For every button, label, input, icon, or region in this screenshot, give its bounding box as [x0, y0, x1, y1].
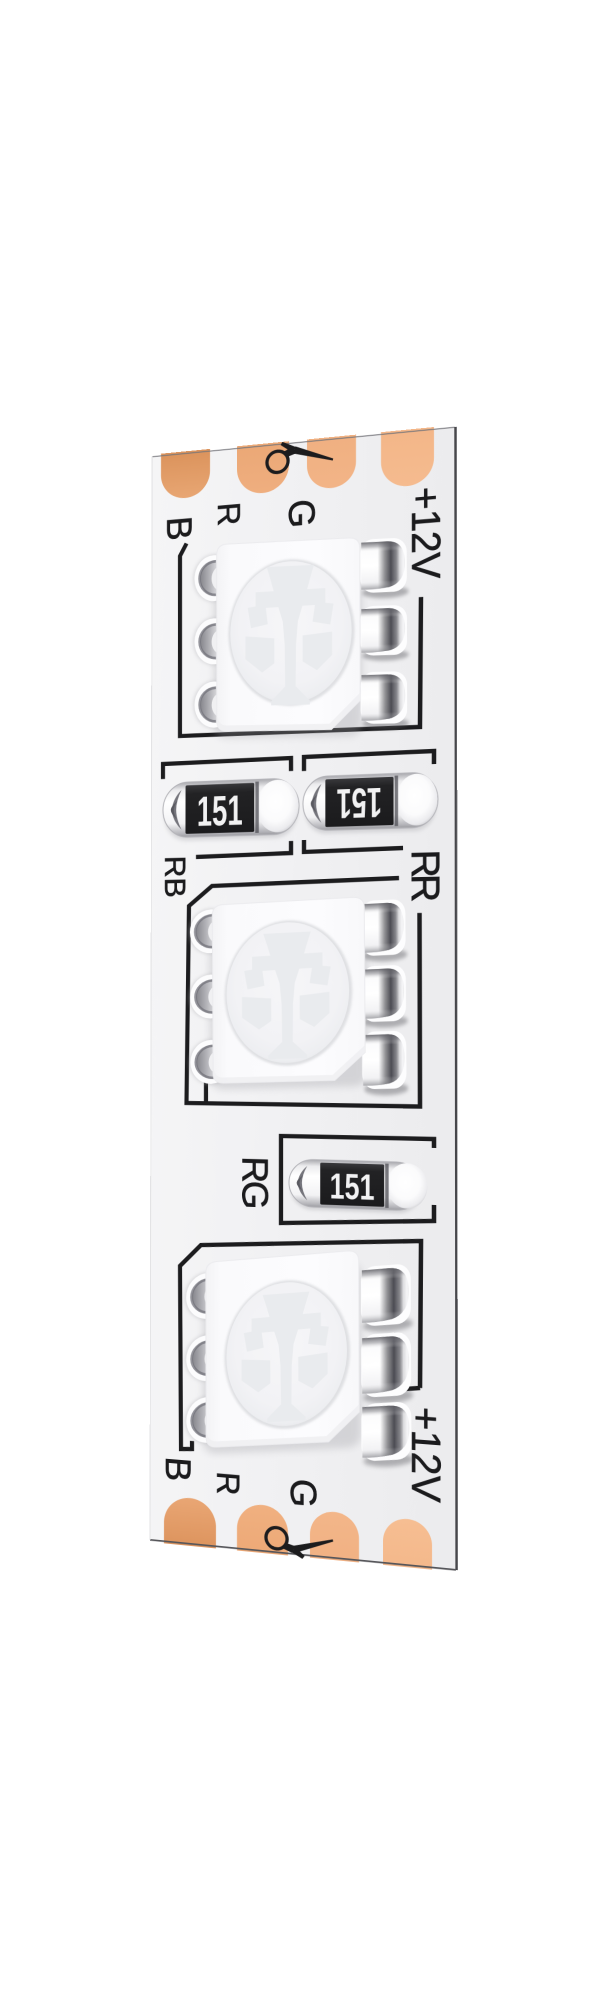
svg-text:151: 151: [330, 1167, 375, 1208]
svg-text:151: 151: [197, 787, 243, 836]
svg-text:RG: RG: [234, 1156, 275, 1208]
svg-text:RR: RR: [403, 849, 448, 901]
svg-text:G: G: [281, 498, 321, 530]
svg-text:RB: RB: [158, 855, 191, 898]
svg-text:+12V: +12V: [403, 485, 448, 582]
svg-text:B: B: [159, 515, 198, 542]
svg-text:R: R: [210, 1470, 245, 1496]
svg-text:B: B: [158, 1455, 198, 1483]
svg-text:R: R: [211, 501, 247, 527]
svg-text:151: 151: [337, 779, 382, 827]
svg-text:G: G: [283, 1477, 323, 1509]
